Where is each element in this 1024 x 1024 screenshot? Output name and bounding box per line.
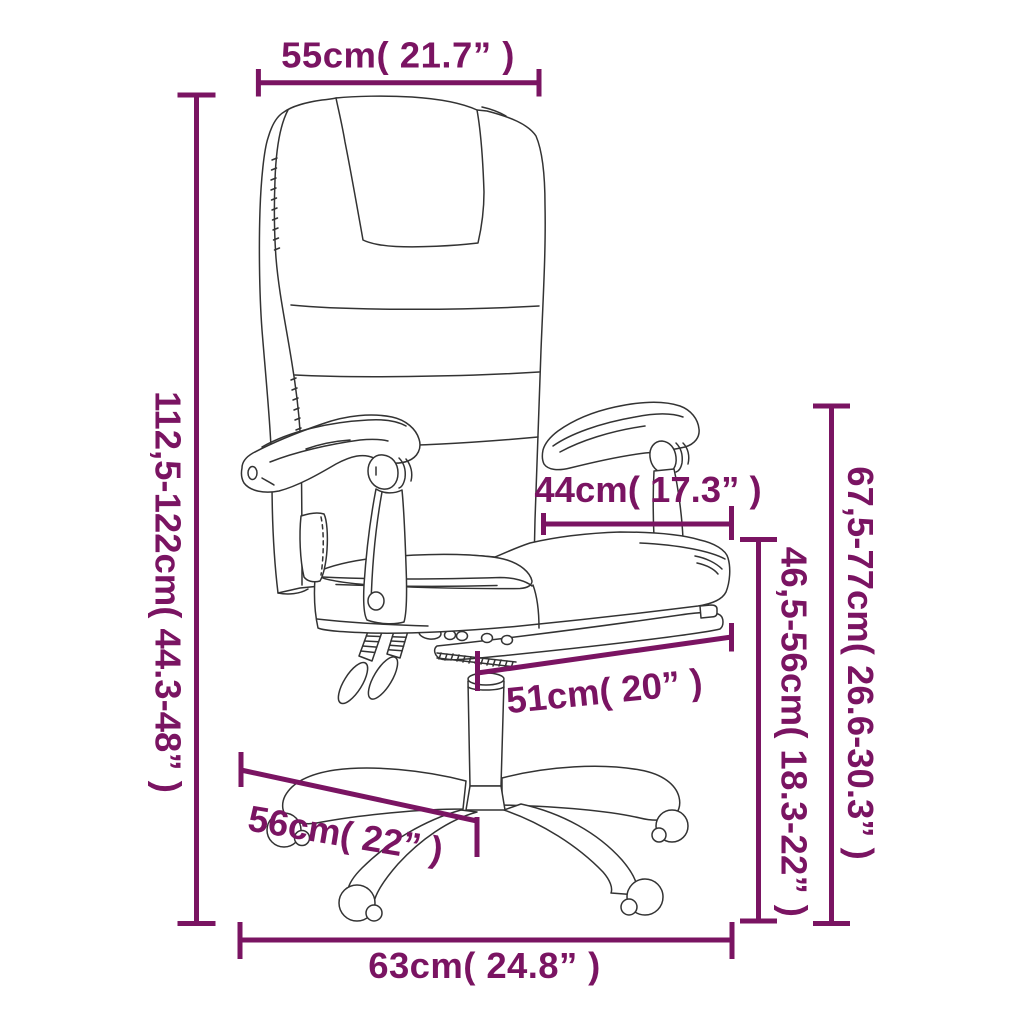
svg-text:112,5-122cm( 44.3-48” ): 112,5-122cm( 44.3-48” ) <box>148 391 189 793</box>
svg-text:44cm( 17.3” ): 44cm( 17.3” ) <box>534 469 761 510</box>
svg-text:63cm( 24.8” ): 63cm( 24.8” ) <box>368 945 600 986</box>
svg-text:55cm( 21.7” ): 55cm( 21.7” ) <box>281 35 515 76</box>
svg-text:51cm( 20” ): 51cm( 20” ) <box>504 661 704 721</box>
svg-text:67,5-77cm( 26.6-30.3” ): 67,5-77cm( 26.6-30.3” ) <box>840 466 881 860</box>
svg-text:46,5-56cm( 18.3-22” ): 46,5-56cm( 18.3-22” ) <box>774 547 815 918</box>
